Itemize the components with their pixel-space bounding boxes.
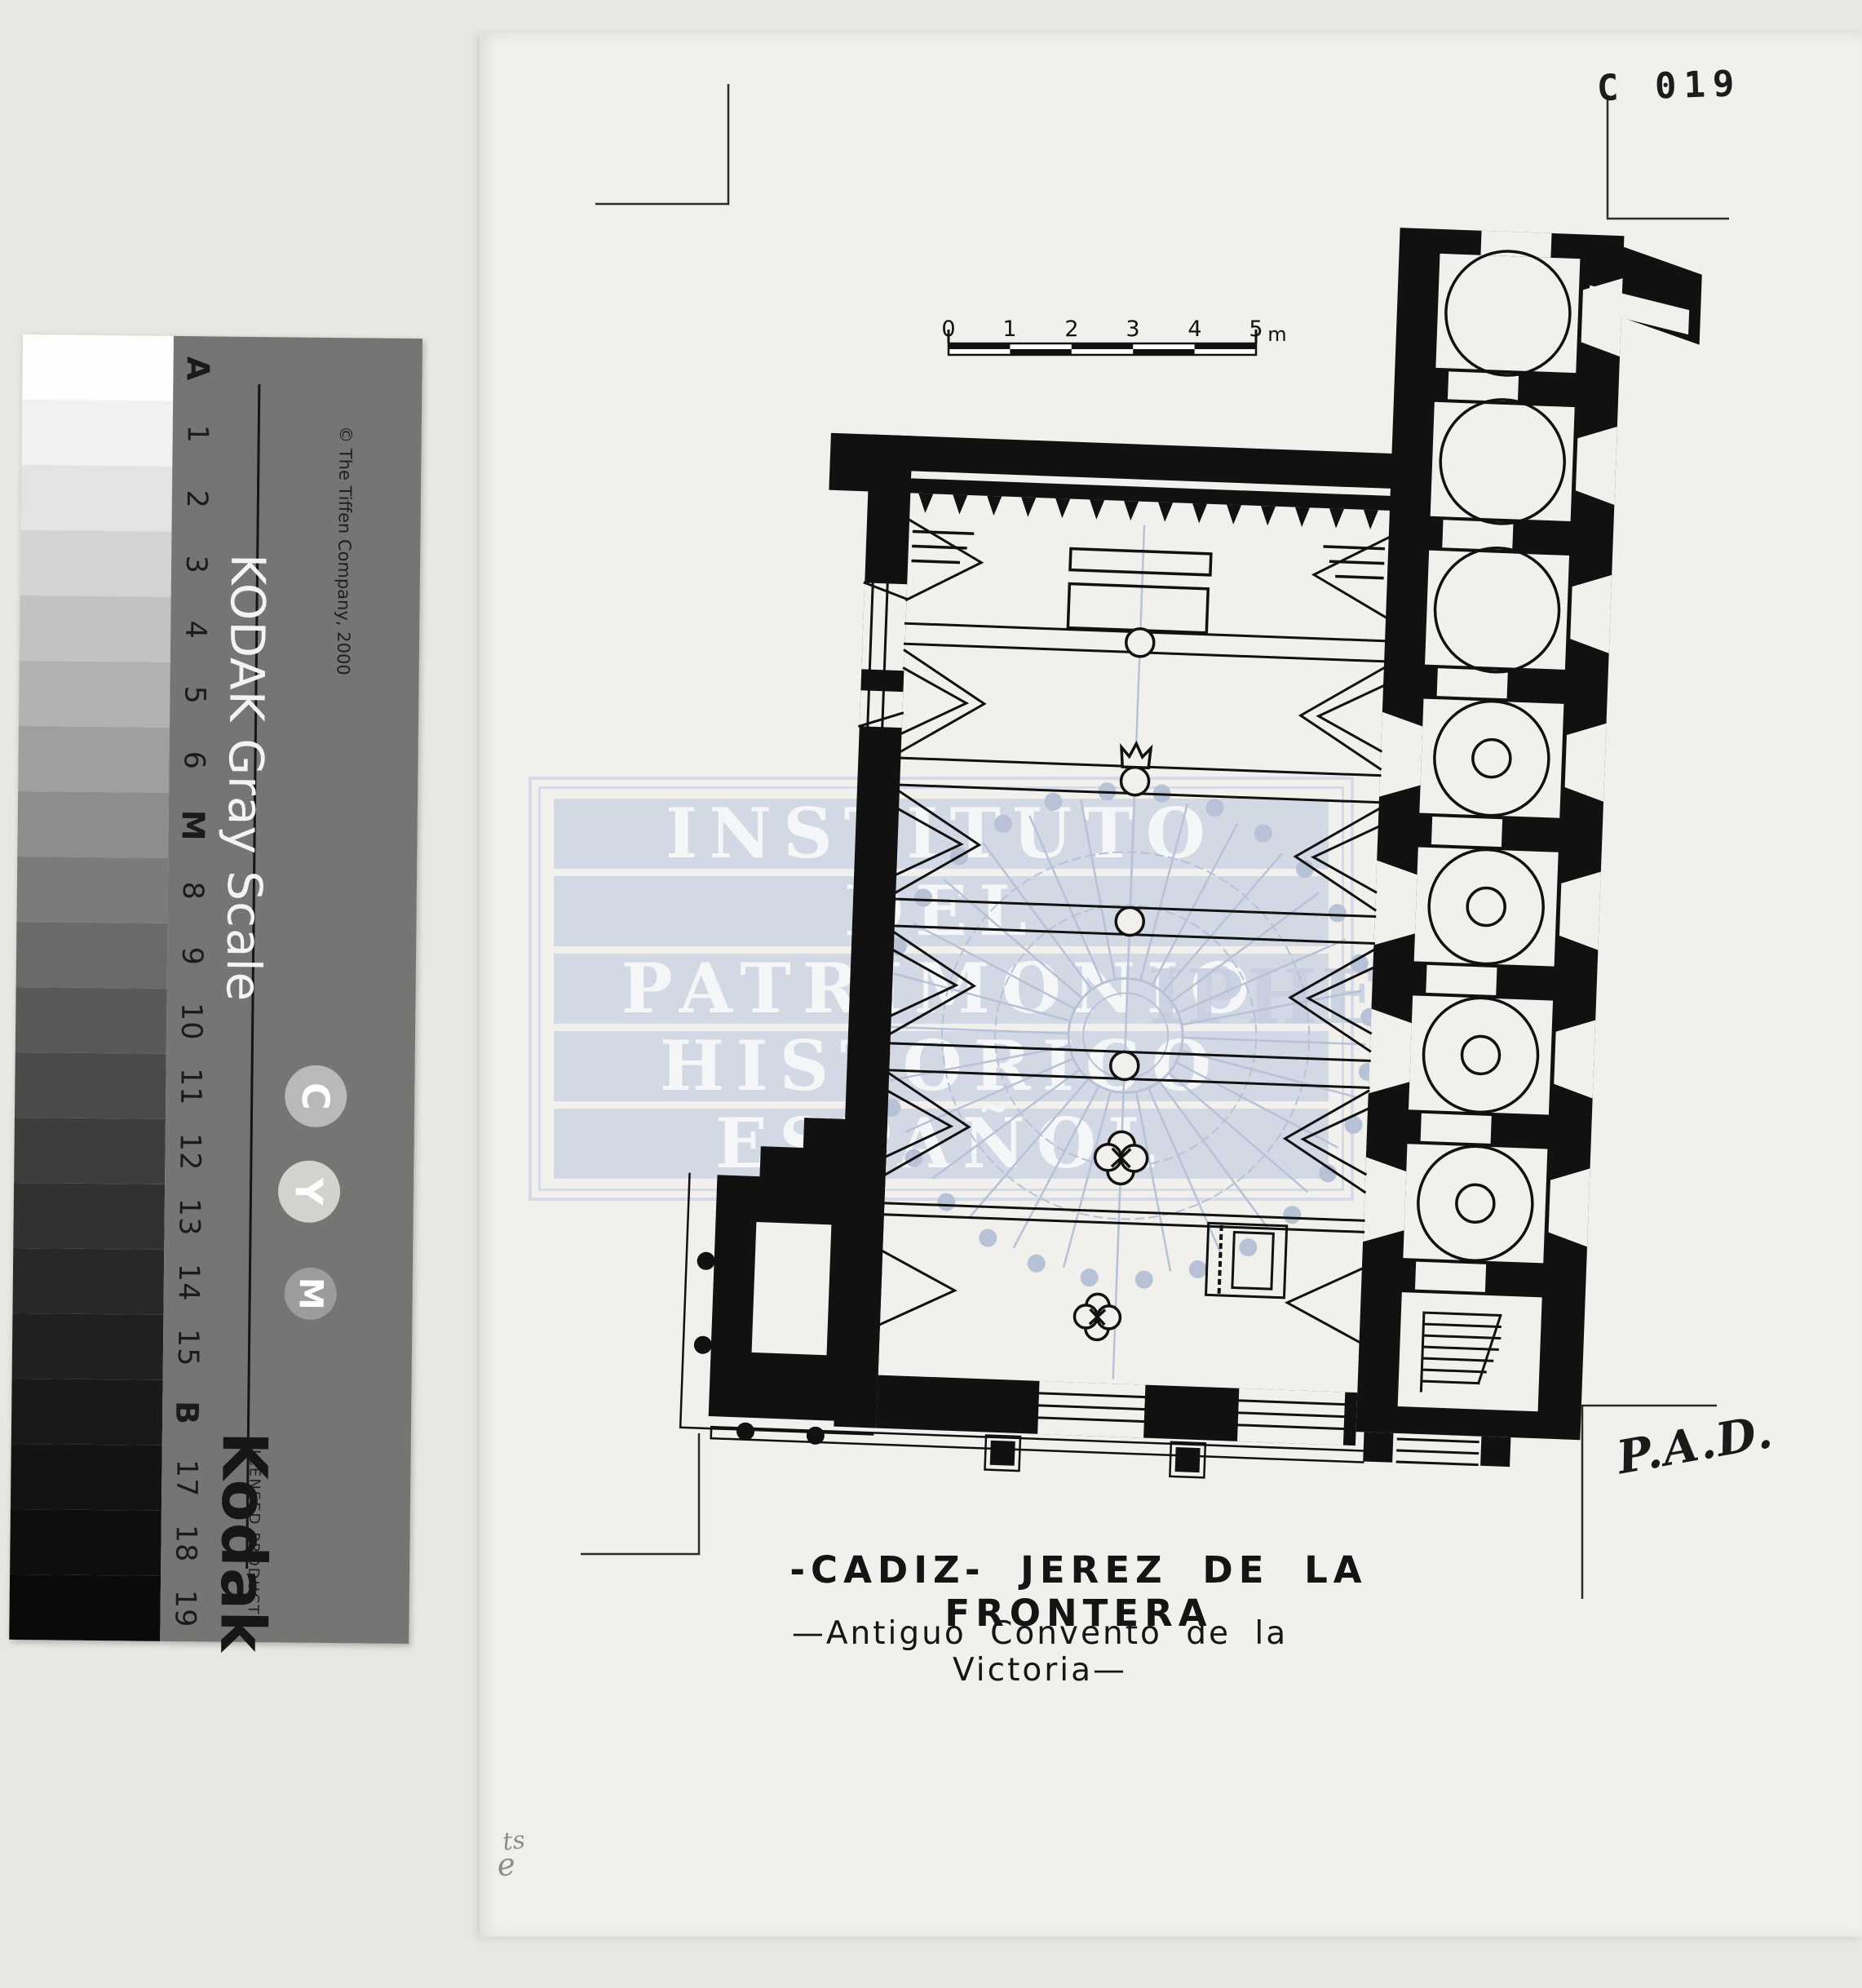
scale-tick-label: 0 [941,317,955,342]
gray-patch [10,1509,161,1576]
patch-step-label: 14 [172,1264,205,1302]
scanned-archive-sheet: { "page": { "background_color": "#e8e7e4… [0,0,1862,1988]
narthex-stair-box [1206,1223,1287,1297]
gray-patch [18,726,170,793]
tiffen-copyright: © The Tiffen Company, 2000 [334,426,356,675]
wing-porch [1363,1432,1510,1467]
patch-step-label: A [179,356,215,382]
gray-patch [14,1118,166,1184]
altar [911,532,1384,640]
scale-tick-label: 2 [1064,317,1078,342]
yellow-patch-circle: Y [278,1160,341,1223]
scale-tick-label: 3 [1126,317,1139,342]
patch-step-label: 15 [171,1329,204,1367]
quatrefoil-boss [1073,1131,1148,1342]
patch-step-label: 5 [178,685,210,705]
patch-step-label: 17 [170,1459,202,1498]
gray-patch [11,1379,163,1446]
patch-step-label: 18 [169,1525,201,1563]
pencil-note: ts e [493,1831,529,1878]
patch-step-label: 8 [176,881,209,901]
gray-patch [16,857,168,923]
patch-step-label: 3 [179,555,212,574]
patch-step-label: 12 [173,1133,206,1171]
gray-patch [12,1313,164,1380]
patch-step-label: 6 [177,750,210,770]
gray-patch-column [9,334,174,1641]
chapel-wing [1355,228,1703,1472]
southwest-room [680,1114,887,1447]
floor-plan [679,203,1704,1494]
gray-patch [15,987,167,1054]
gray-patch [20,596,171,662]
gray-patch [20,530,172,597]
gray-patch [11,1444,162,1511]
patch-step-label: 1 [181,424,214,444]
kodak-card: A123456M89101112131415B171819 © The Tiff… [160,336,422,1644]
gray-patch [13,1183,165,1250]
patch-step-label: 11 [174,1068,206,1106]
patch-step-label: 19 [168,1590,201,1628]
gray-patch [19,661,170,728]
gray-patch [22,334,174,401]
patch-step-label: 10 [175,1003,207,1041]
patch-step-label: 2 [180,489,213,509]
gray-patch [17,791,169,858]
scale-tick-label: 5 [1249,317,1263,342]
patch-step-label: M [175,810,211,842]
cyan-patch-circle: C [285,1065,347,1127]
gray-patch [20,465,172,532]
scale-tick-label: 4 [1188,317,1201,342]
gray-patch [12,1248,164,1315]
caption-building: —Antiguo Convento de la Victoria— [718,1615,1362,1689]
patch-step-label: 13 [172,1198,205,1237]
gray-patch [9,1574,161,1641]
kodak-gray-scale-title: KODAK Gray Scale [215,554,276,1003]
scale-tick-label: 1 [1002,317,1016,342]
gray-patch [21,400,173,467]
patch-step-label: B [169,1401,205,1425]
kodak-logo: Kodak [206,1431,281,1653]
archive-number: C 019 [1596,63,1742,109]
patch-step-label: 9 [175,946,208,966]
patch-step-label: 4 [179,620,211,640]
magenta-patch-circle: M [284,1267,337,1320]
gray-patch [15,1052,166,1119]
gray-patch [16,922,168,989]
kodak-gray-scale-strip: A123456M89101112131415B171819 © The Tiff… [9,334,422,1644]
scale-bar: 0 1 2 3 4 5 m [941,317,1286,355]
scale-unit-label: m [1267,323,1286,346]
